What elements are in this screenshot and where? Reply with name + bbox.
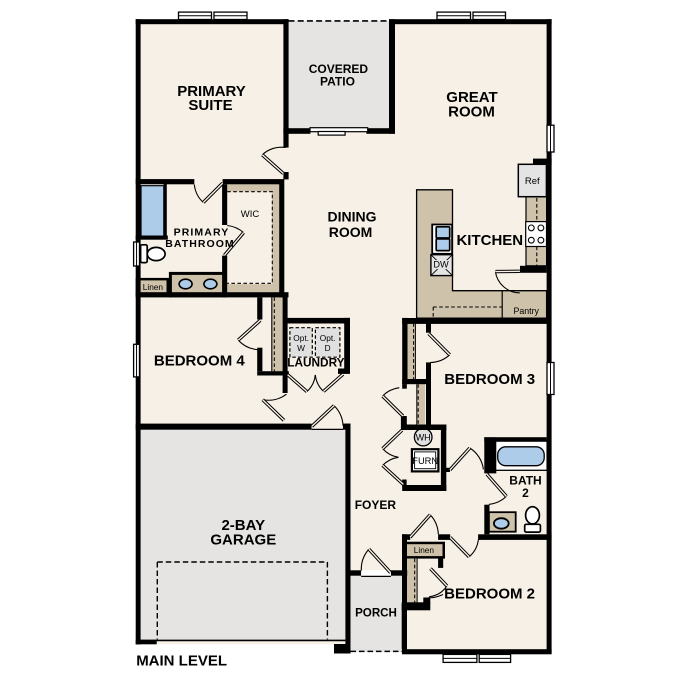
svg-text:FOYER: FOYER [355, 498, 397, 512]
svg-text:BEDROOM 2: BEDROOM 2 [444, 586, 535, 603]
svg-text:GARAGE: GARAGE [210, 532, 276, 549]
svg-text:Ref: Ref [525, 176, 540, 187]
svg-text:DINING: DINING [328, 208, 377, 224]
svg-text:BEDROOM 4: BEDROOM 4 [154, 353, 246, 370]
svg-text:PATIO: PATIO [320, 75, 355, 89]
svg-text:WH: WH [416, 433, 431, 443]
svg-text:ROOM: ROOM [448, 104, 495, 121]
svg-text:WIC: WIC [241, 209, 260, 220]
svg-text:Linen: Linen [143, 282, 164, 292]
svg-text:ROOM: ROOM [329, 224, 373, 240]
svg-text:KITCHEN: KITCHEN [456, 232, 523, 249]
svg-text:MAIN LEVEL: MAIN LEVEL [136, 652, 227, 669]
svg-text:W: W [297, 343, 305, 353]
svg-text:2: 2 [522, 486, 529, 500]
svg-text:DW: DW [433, 260, 449, 270]
svg-text:PORCH: PORCH [355, 606, 397, 619]
svg-text:BATHROOM: BATHROOM [165, 238, 234, 250]
svg-text:LAUNDRY: LAUNDRY [287, 355, 344, 369]
svg-text:D: D [325, 343, 331, 353]
svg-text:Opt.: Opt. [320, 333, 336, 343]
svg-text:BEDROOM 3: BEDROOM 3 [444, 371, 535, 388]
svg-text:Pantry: Pantry [513, 306, 539, 316]
svg-text:FURN: FURN [412, 456, 438, 466]
svg-text:SUITE: SUITE [188, 97, 232, 114]
svg-text:Linen: Linen [414, 545, 435, 555]
svg-text:Opt.: Opt. [293, 333, 309, 343]
svg-text:PRIMARY: PRIMARY [174, 226, 230, 238]
